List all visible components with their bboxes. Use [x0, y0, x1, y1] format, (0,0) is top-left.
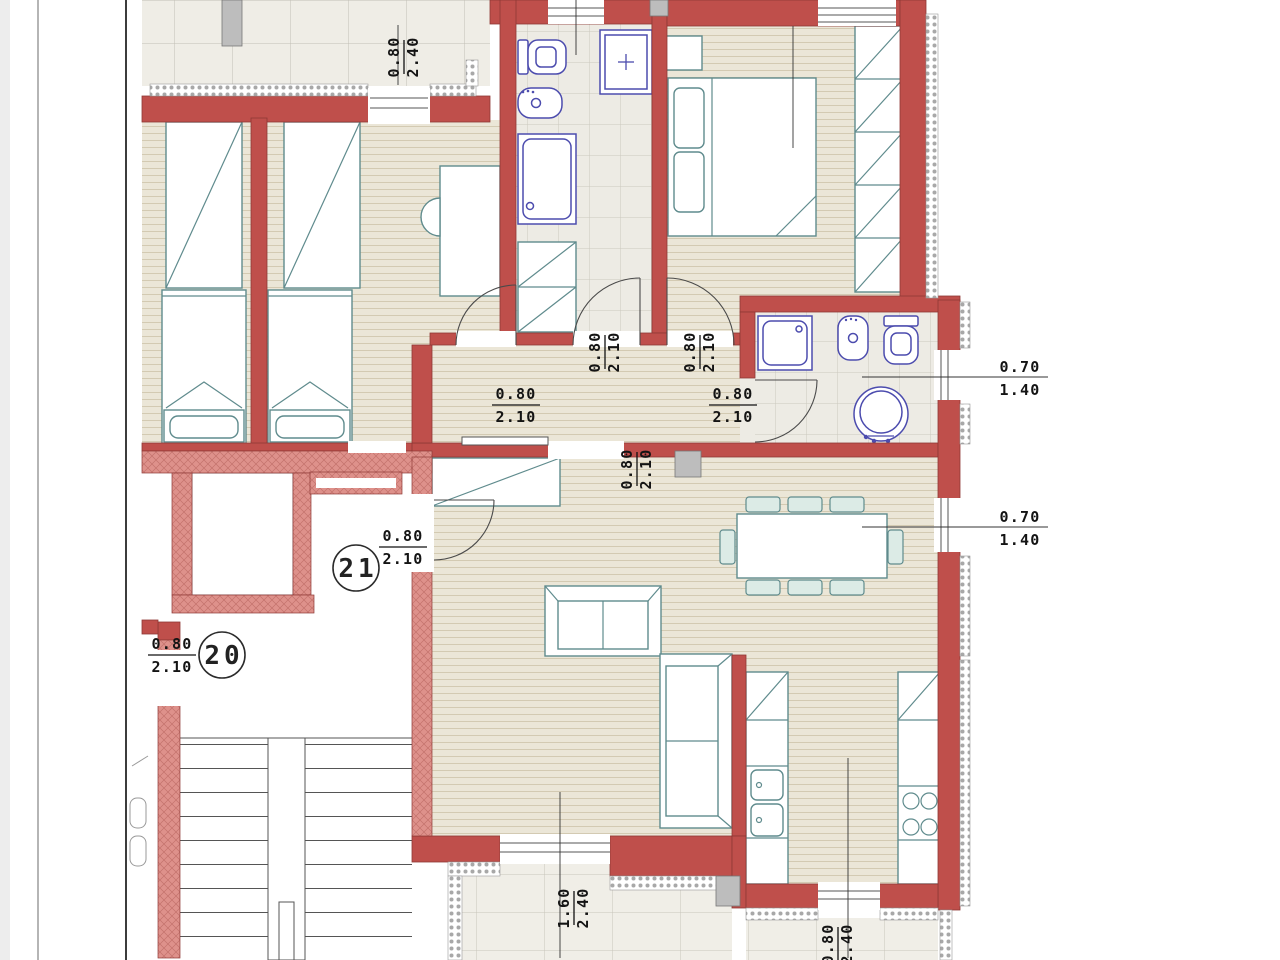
shaft-left-wall	[172, 473, 192, 595]
stair-wall-stub	[142, 620, 158, 634]
floor-plan-page: 0.80 2.40 0.80 2.10 0.80 2.10 0.80 2.10 …	[0, 0, 1280, 960]
shower-tray	[518, 134, 576, 224]
dining-chair	[888, 530, 903, 564]
landing-east-slot	[316, 478, 396, 488]
landing-rail-2	[130, 836, 146, 866]
dim-text: 0.80	[496, 385, 537, 403]
stairs-left-flight	[180, 738, 268, 960]
dining-chair	[830, 497, 864, 512]
kitchen-sink	[751, 770, 783, 800]
bath1-left-wall	[500, 0, 516, 333]
dim-text: 2.10	[700, 332, 718, 373]
dim-text: 0.70	[1000, 508, 1041, 526]
insulation-band	[448, 862, 500, 876]
kitchen-counter-left	[746, 672, 788, 884]
landing-rail-1	[130, 798, 146, 828]
terrace-door-window	[368, 88, 430, 124]
dim-terrace-door: 0.80 2.40	[385, 37, 422, 78]
dim-text: 0.80	[385, 37, 403, 78]
dim-text: 0.80	[152, 635, 193, 653]
insulation-band	[960, 404, 970, 444]
insulation-band	[960, 556, 970, 656]
insulation-band	[960, 660, 970, 906]
bath1-right-wall	[652, 0, 667, 333]
page-edge-strip	[0, 0, 10, 960]
sofa-small	[545, 586, 661, 656]
master-wardrobe	[855, 26, 903, 292]
balcony-door-opening	[500, 834, 610, 864]
sofa-large	[660, 654, 732, 828]
insulation-band	[960, 302, 970, 348]
dim-text: 1.40	[1000, 381, 1041, 399]
shower-tray-2	[758, 316, 812, 370]
dining-chair	[746, 580, 780, 595]
dim-apt20-door: 0.80 2.10	[148, 635, 196, 676]
insulation-band	[610, 876, 718, 890]
master-bottom-wall	[740, 296, 960, 312]
dim-text: 0.80	[383, 527, 424, 545]
dim-apt21-door: 0.80 2.10	[379, 527, 427, 568]
master-right-wall	[900, 0, 926, 300]
living-window-glyph	[934, 498, 962, 552]
bedroom2-door-opening	[456, 331, 516, 347]
terrace-post	[222, 0, 242, 46]
page-edge	[0, 0, 126, 960]
insulation-band	[926, 14, 938, 298]
dim-text: 0.70	[1000, 358, 1041, 376]
dim-slider-door: 0.80 2.10	[618, 449, 655, 490]
double-bed	[668, 78, 816, 236]
bidet-2	[838, 316, 868, 360]
dim-text: 1.60	[555, 888, 573, 929]
dim-bath1-door: 0.80 2.10	[586, 332, 623, 373]
pillow-1	[674, 88, 704, 148]
dim-text: 0.80	[713, 385, 754, 403]
living-bottom-wall-left	[412, 836, 500, 862]
dim-text: 2.10	[605, 332, 623, 373]
sliding-door-leaf	[462, 437, 548, 445]
dim-bath2-door: 0.80 2.10	[709, 385, 757, 426]
kitchen-counter-right	[898, 672, 940, 884]
dining-chair	[788, 580, 822, 595]
dim-text: 2.10	[637, 449, 655, 490]
dim-balcony-door: 1.60 2.40	[555, 888, 592, 929]
bedroom1-door-opening	[348, 441, 406, 453]
insulation-band	[746, 908, 818, 920]
dim-text: 2.40	[574, 888, 592, 929]
dim-text: 2.10	[152, 658, 193, 676]
insulation-band	[466, 60, 478, 86]
shaft-bottom-wall	[172, 595, 314, 613]
apartment-20-badge: 20	[199, 632, 245, 678]
apartment-number: 20	[204, 641, 243, 671]
dining-table	[737, 514, 887, 578]
nightstand	[662, 36, 702, 70]
dim-text: 0.80	[586, 332, 604, 373]
stairs-stringer-tongue	[279, 902, 294, 960]
kitchen-sink	[751, 804, 783, 836]
linen-closet	[518, 242, 576, 332]
washbasin-cabinet	[600, 30, 652, 94]
toilet-2	[884, 316, 918, 364]
bidet	[518, 88, 562, 118]
bath2-left-wall	[740, 312, 755, 378]
dim-master-door: 0.80 2.10	[681, 332, 718, 373]
wardrobe-1	[166, 122, 242, 288]
terrace-floor	[142, 0, 490, 86]
floor-plan-svg: 0.80 2.40 0.80 2.10 0.80 2.10 0.80 2.10 …	[0, 0, 1280, 960]
stairs-right-flight	[305, 738, 412, 960]
master-window	[818, 0, 896, 26]
bath2-window-glyph	[934, 350, 962, 400]
dim-text: 1.40	[1000, 531, 1041, 549]
insulation-band	[880, 908, 938, 920]
single-bed-2	[268, 290, 352, 444]
dim-text: 2.10	[383, 550, 424, 568]
dining-chair	[830, 580, 864, 595]
terrace-wall	[142, 96, 490, 122]
wardrobe-2	[284, 122, 360, 288]
shaft-right-wall	[293, 473, 311, 595]
dim-kitchen-door: 0.80 2.40	[819, 924, 856, 960]
dining-chair	[746, 497, 780, 512]
kitchen-balcony-door	[818, 882, 880, 910]
toilet	[518, 40, 566, 74]
insulation-band	[940, 910, 952, 960]
insulation-band	[150, 84, 368, 96]
dim-bedroom-door: 0.80 2.10	[492, 385, 540, 426]
dining-chair	[788, 497, 822, 512]
pillow-2	[674, 152, 704, 212]
dim-text: 0.80	[618, 449, 636, 490]
living-bottom-wall-right	[610, 836, 732, 876]
dining-chair	[720, 530, 735, 564]
dim-text: 2.10	[713, 408, 754, 426]
corridor-left-wall	[412, 345, 432, 443]
apartment-21-badge: 21	[333, 545, 379, 591]
sideboard	[432, 458, 560, 506]
balcony-corner-block	[716, 876, 740, 906]
roof-post	[650, 0, 668, 16]
dim-text: 0.80	[681, 332, 699, 373]
single-bed-1	[162, 290, 246, 444]
stairwell-top-wall	[142, 451, 432, 473]
landing-mark	[132, 756, 148, 766]
bedroom-partition-wall	[251, 118, 267, 445]
insulation-band	[448, 876, 462, 960]
apartment-number: 21	[338, 554, 377, 584]
dim-text: 2.40	[404, 37, 422, 78]
dim-text: 0.80	[819, 924, 837, 960]
dim-text: 2.40	[838, 924, 856, 960]
corridor-column	[675, 451, 701, 477]
dim-text: 2.10	[496, 408, 537, 426]
shaft-room	[192, 473, 293, 595]
kitchen-divider-wall	[732, 655, 746, 836]
